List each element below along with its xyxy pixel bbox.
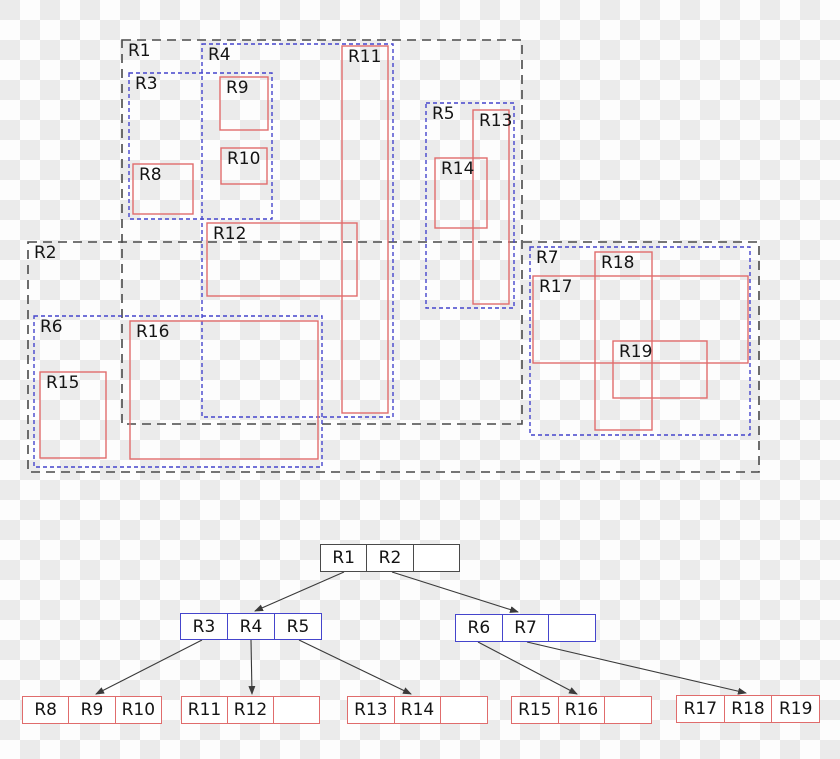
- tree-node-leaf-r11-r12: R11R12: [181, 696, 320, 724]
- tree-node-root: R1R2: [320, 544, 460, 572]
- tree-node-node-r6-r7: R6R7: [455, 614, 596, 642]
- mbr-rect-r8: [133, 164, 193, 214]
- mbr-rect-r6: [34, 316, 322, 467]
- tree-cell-r13: R13: [348, 697, 394, 723]
- tree-edge-1: [392, 572, 518, 612]
- tree-cell-r16: R16: [558, 697, 605, 723]
- tree-cell-r15: R15: [512, 697, 558, 723]
- rtree-figure: R1R2R3R4R5R6R7R8R9R10R11R12R13R14R15R16R…: [0, 0, 840, 759]
- tree-cell-r18: R18: [724, 696, 772, 722]
- mbr-rect-r5: [426, 103, 514, 308]
- tree-cell-r2: R2: [366, 545, 412, 571]
- tree-cell-empty: [548, 615, 595, 641]
- tree-cell-empty: [413, 545, 459, 571]
- tree-node-leaf-r17-r18-r19: R17R18R19: [676, 695, 820, 723]
- tree-node-leaf-r8-r9-r10: R8R9R10: [22, 696, 162, 724]
- tree-edge-4: [299, 640, 411, 694]
- tree-cell-r11: R11: [182, 697, 227, 723]
- tree-edge-0: [255, 572, 344, 611]
- tree-cell-r10: R10: [115, 697, 161, 723]
- mbr-rect-r14: [435, 158, 487, 228]
- tree-cell-r7: R7: [502, 615, 549, 641]
- tree-cell-empty: [273, 697, 319, 723]
- tree-cell-r12: R12: [227, 697, 273, 723]
- spatial-rectangles: [28, 40, 759, 472]
- tree-cell-r1: R1: [321, 545, 366, 571]
- mbr-rect-r12: [207, 223, 357, 296]
- mbr-rect-r19: [613, 341, 707, 398]
- tree-edge-3: [251, 640, 252, 694]
- mbr-rect-r9: [220, 77, 268, 130]
- mbr-rect-r11: [342, 46, 388, 413]
- tree-node-node-r3-r4-r5: R3R4R5: [180, 613, 322, 640]
- mbr-rect-r17: [533, 276, 748, 363]
- tree-node-leaf-r15-r16: R15R16: [511, 696, 652, 724]
- mbr-rect-r3: [129, 73, 272, 219]
- geometry-layer: [0, 0, 840, 759]
- tree-cell-r14: R14: [394, 697, 441, 723]
- tree-cell-r6: R6: [456, 615, 502, 641]
- mbr-rect-r4: [202, 44, 393, 417]
- tree-cell-r5: R5: [274, 614, 321, 639]
- tree-cell-r4: R4: [227, 614, 274, 639]
- mbr-rect-r10: [221, 148, 267, 184]
- tree-cell-r3: R3: [181, 614, 227, 639]
- tree-cell-r19: R19: [771, 696, 819, 722]
- mbr-rect-r16: [130, 321, 318, 459]
- tree-cell-empty: [604, 697, 651, 723]
- tree-node-leaf-r13-r14: R13R14: [347, 696, 488, 724]
- tree-cell-r9: R9: [68, 697, 114, 723]
- mbr-rect-r13: [473, 110, 509, 304]
- tree-cell-r8: R8: [23, 697, 68, 723]
- mbr-rect-r15: [40, 372, 106, 458]
- tree-cell-empty: [440, 697, 487, 723]
- tree-cell-r17: R17: [677, 696, 724, 722]
- tree-edge-2: [96, 640, 202, 694]
